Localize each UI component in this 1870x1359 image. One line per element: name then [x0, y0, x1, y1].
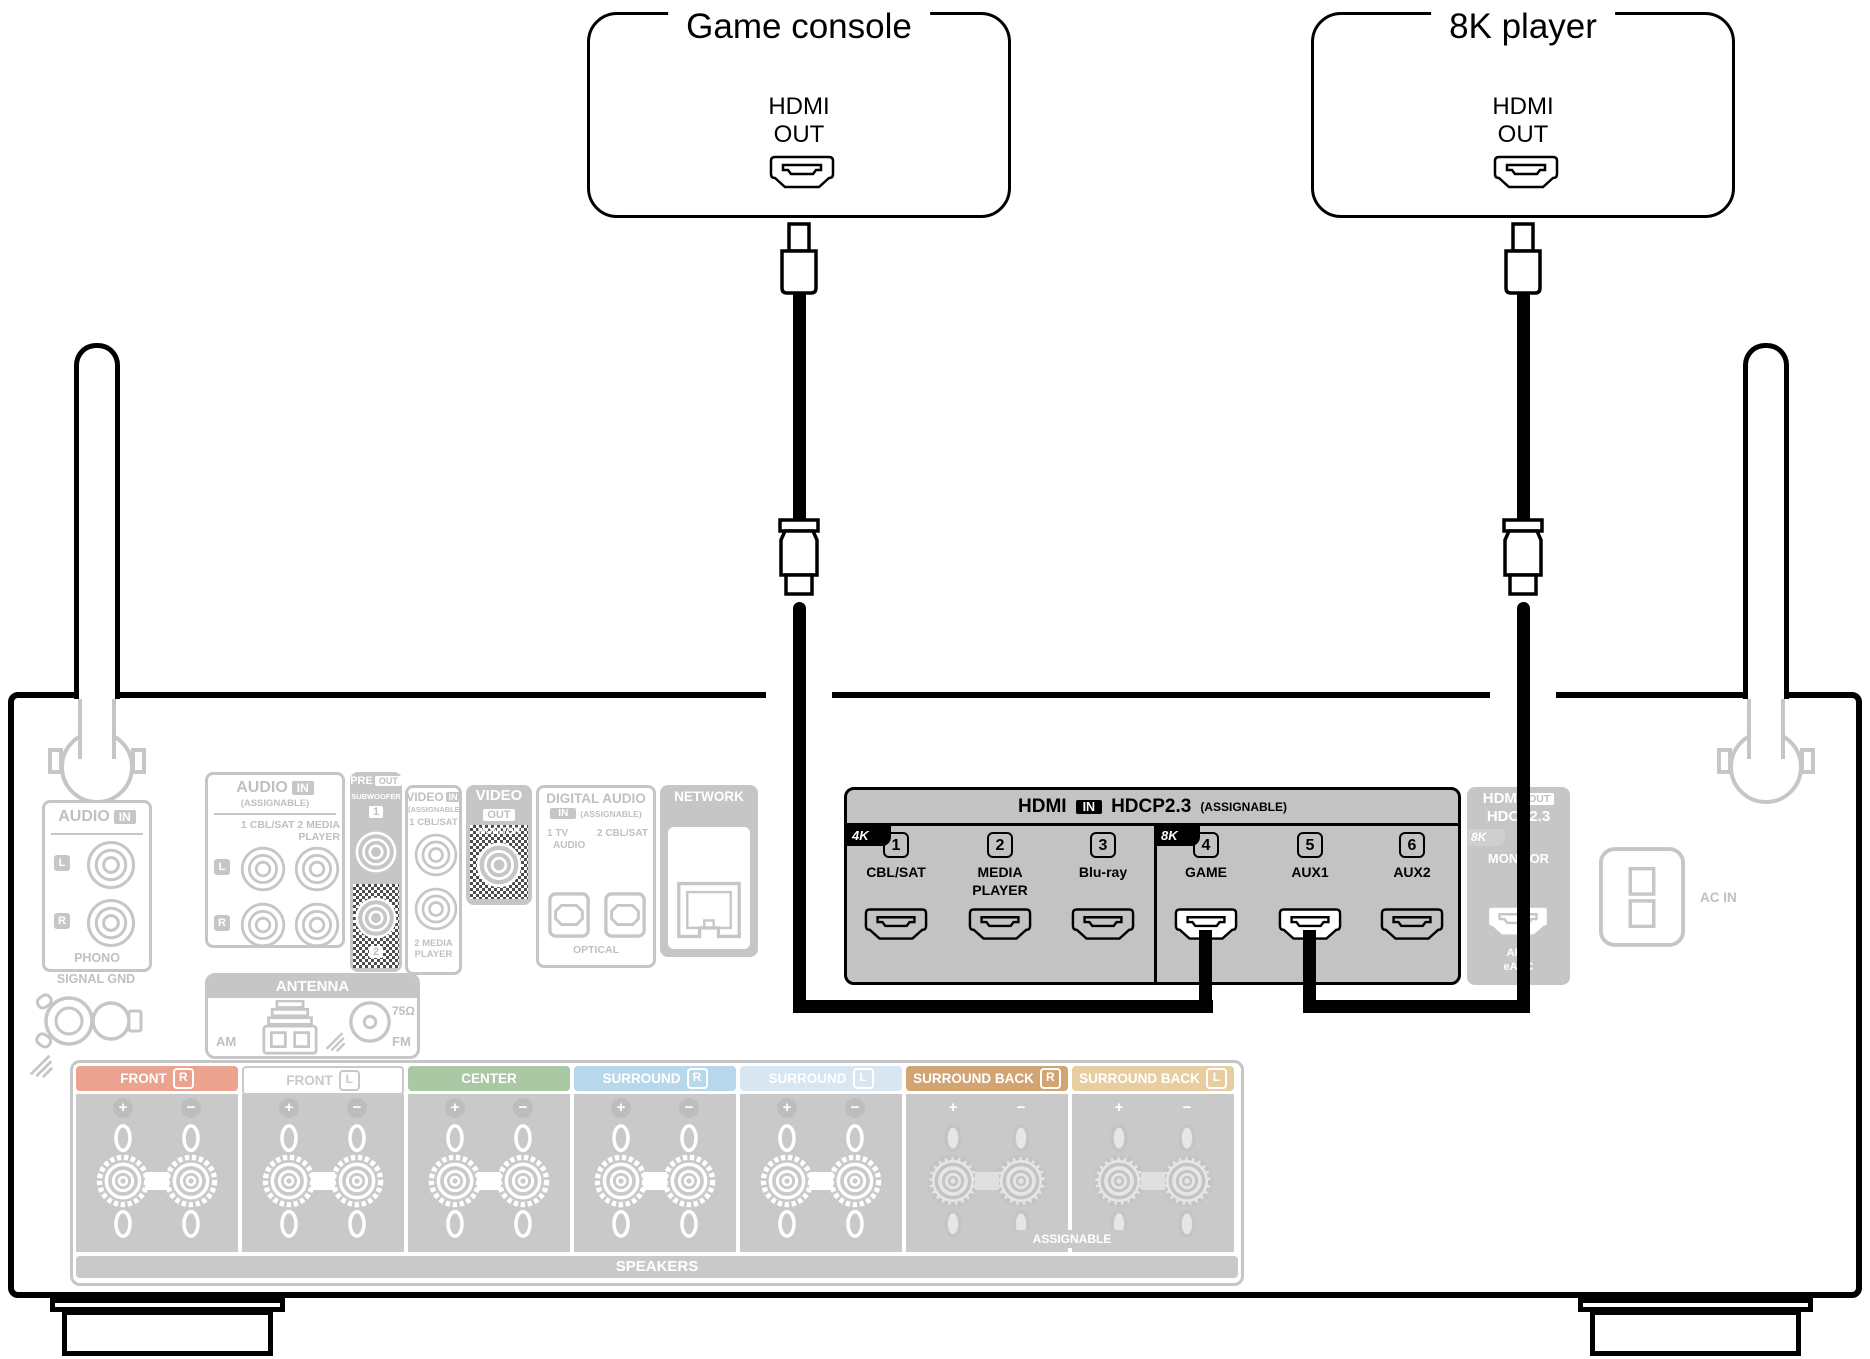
- minus-terminal-icon: −: [679, 1098, 699, 1118]
- fm-coax-icon: [348, 1000, 392, 1044]
- device-title: 8K player: [1431, 5, 1615, 49]
- speaker-channel-center: CENTER + −: [408, 1066, 570, 1252]
- antenna-rod-left: [74, 343, 120, 699]
- fm-75ohm-label: 75Ω: [392, 1004, 415, 1018]
- hdmi-out-title: HDMI: [1483, 790, 1521, 807]
- speaker-channel-name: SURROUND: [768, 1071, 846, 1086]
- pre-out-badge: OUT: [375, 776, 402, 786]
- network-port-panel: [668, 827, 750, 949]
- video-input1-label: 1 CBL/SAT: [408, 817, 459, 828]
- hdmi-port-label: MEDIA: [948, 864, 1052, 881]
- left-channel-label: L: [54, 855, 70, 871]
- hdmi-out-label-line2: OUT: [1314, 121, 1732, 149]
- speaker-channel-name: SURROUND BACK: [913, 1071, 1034, 1086]
- network-label: NETWORK: [660, 789, 758, 804]
- signal-gnd-label: SIGNAL GND: [28, 972, 164, 986]
- receiver-foot-left: [62, 1310, 273, 1356]
- speaker-side-badge: L: [853, 1068, 874, 1089]
- hdmi-out-label-line1: HDMI: [1314, 93, 1732, 121]
- subwoofer-label: SUBWOOFER: [350, 792, 402, 801]
- digital-input1-line2: AUDIO: [553, 840, 585, 851]
- hdmi-in-title: HDMI: [1018, 796, 1067, 818]
- hdmi-in-assignable: (ASSIGNABLE): [1200, 800, 1287, 814]
- hdmi-out-8k-badge: 8K: [1467, 829, 1505, 846]
- left-channel-label: L: [214, 859, 230, 875]
- hdmi-plug-icon: [1501, 518, 1545, 600]
- audio-inputs-line1: 1 CBL/SAT 2 MEDIA: [208, 819, 340, 831]
- plus-terminal-icon: +: [943, 1098, 963, 1118]
- divider: [51, 833, 143, 835]
- monitor-jack-area: MONITOR: [470, 825, 528, 899]
- hdmi-cable-game-run-to-port: [1199, 930, 1212, 1010]
- hdmi-in-hdcp: HDCP2.3: [1111, 796, 1191, 818]
- speakers-title-bar: SPEAKERS: [76, 1256, 1238, 1278]
- pre-out-title: PRE: [350, 775, 373, 787]
- hdmi-cable-8k-run-vertical: [1517, 602, 1530, 1013]
- rca-jack: [293, 845, 341, 893]
- binding-post-icon: [427, 1120, 483, 1242]
- audio-in-header: AUDIO: [236, 779, 288, 797]
- ethernet-port-icon: [675, 879, 743, 941]
- optical-label: OPTICAL: [539, 944, 653, 956]
- rca-jack-subwoofer-2: [354, 896, 398, 940]
- minus-terminal-icon: −: [513, 1098, 533, 1118]
- audio-in-badge: IN: [292, 781, 314, 795]
- device-title: Game console: [668, 5, 930, 49]
- hdmi-port-number: 6: [1399, 832, 1425, 858]
- hdmi-port-number: 2: [987, 832, 1013, 858]
- subwoofer-1-label: 1: [369, 806, 383, 818]
- hdmi-in-header: HDMI IN HDCP2.3 (ASSIGNABLE): [847, 790, 1458, 826]
- digital-input1-line1: 1 TV: [547, 828, 568, 839]
- digital-audio-header: DIGITAL AUDIO: [539, 791, 653, 806]
- optical-port-1: [547, 891, 591, 939]
- video-input2-label-line2: PLAYER: [408, 949, 459, 960]
- hdmi-port-cblsat: [864, 906, 928, 944]
- speaker-channel-name: FRONT: [120, 1071, 167, 1086]
- plus-terminal-icon: +: [1109, 1098, 1129, 1118]
- video-input2-label-line1: 2 MEDIA: [408, 938, 459, 949]
- phono-in-badge: IN: [114, 810, 136, 824]
- digital-audio-assignable: (ASSIGNABLE): [580, 809, 641, 819]
- video-out-header: VIDEO: [466, 787, 532, 804]
- speaker-side-badge: R: [687, 1068, 708, 1089]
- ac-inlet-icon: [1598, 846, 1686, 948]
- signal-gnd-terminal-icon: [35, 992, 147, 1050]
- right-channel-label: R: [214, 915, 230, 931]
- binding-post-icon: [827, 1120, 883, 1242]
- hdmi-port-number: 3: [1090, 832, 1116, 858]
- fm-label: FM: [392, 1034, 411, 1049]
- speaker-channel-bar: FRONT R: [76, 1066, 238, 1091]
- audio-in-phono-block: AUDIO IN L R PHONO: [42, 800, 152, 972]
- video-in-badge: IN: [446, 792, 461, 802]
- am-label: AM: [216, 1034, 236, 1049]
- hdmi-port-number: 4: [1193, 832, 1219, 858]
- antenna-rod-inner-right: [1747, 699, 1785, 759]
- hdmi-cable-game-run-vertical: [793, 602, 806, 1013]
- antenna-rod-right: [1743, 343, 1789, 699]
- hdmi-port-media-player: [968, 906, 1032, 944]
- plus-terminal-icon: +: [279, 1098, 299, 1118]
- binding-post-icon: [261, 1120, 317, 1242]
- antenna-hinge-tab: [1800, 748, 1815, 774]
- speaker-side-badge: L: [1206, 1068, 1227, 1089]
- speakers-assignable-label: ASSIGNABLE: [1012, 1230, 1132, 1248]
- ground-icon: [28, 1052, 56, 1078]
- speaker-channel-bar: SURROUND L: [740, 1066, 902, 1091]
- speaker-channel-surround-l: SURROUND L + −: [740, 1066, 902, 1252]
- speaker-channel-surround-back-r: SURROUND BACK R + −: [906, 1066, 1068, 1252]
- hdmi-port-icon: [769, 155, 835, 191]
- antenna-hinge-tab: [1717, 748, 1732, 774]
- am-terminal-icon: [260, 1000, 320, 1056]
- speaker-channel-name: CENTER: [461, 1071, 517, 1086]
- hdmi-cable-8k: [1517, 292, 1530, 520]
- hdmi-port-aux2: [1380, 906, 1444, 944]
- antenna-block: ANTENNA AM 75Ω FM: [205, 973, 420, 1059]
- minus-terminal-icon: −: [1177, 1098, 1197, 1118]
- post-link-bar: [809, 1172, 833, 1190]
- minus-terminal-icon: −: [181, 1098, 201, 1118]
- hdmi-cable-8k-run-to-port: [1303, 930, 1316, 1010]
- minus-terminal-icon: −: [1011, 1098, 1031, 1118]
- phono-header: AUDIO: [58, 808, 110, 826]
- hdmi-cable-game-run-horizontal: [793, 1000, 1213, 1013]
- hdmi-plug-icon: [1501, 222, 1545, 296]
- video-in-block: VIDEO IN (ASSIGNABLE) 1 CBL/SAT 2 MEDIA …: [405, 785, 462, 975]
- ground-icon: [324, 1030, 348, 1052]
- binding-post-icon: [1091, 1120, 1147, 1242]
- device-box-game-console: Game console HDMI OUT: [587, 12, 1011, 218]
- minus-terminal-icon: −: [347, 1098, 367, 1118]
- post-link-bar: [643, 1172, 667, 1190]
- hdmi-port-label-line2: PLAYER: [948, 882, 1052, 899]
- network-block: NETWORK: [660, 785, 758, 957]
- audio-inputs-line2: PLAYER: [208, 831, 340, 843]
- post-link-bar: [145, 1172, 169, 1190]
- hdmi-out-label-line1: HDMI: [590, 93, 1008, 121]
- binding-post-icon: [661, 1120, 717, 1242]
- hdmi-in-badge: IN: [1076, 800, 1103, 814]
- hdmi-port-number: 5: [1297, 832, 1323, 858]
- hdmi-port-label: Blu-ray: [1051, 864, 1155, 881]
- antenna-hinge-tab: [48, 748, 63, 774]
- hdmi-port-label: AUX1: [1258, 864, 1362, 881]
- plus-terminal-icon: +: [113, 1098, 133, 1118]
- binding-post-icon: [95, 1120, 151, 1242]
- subwoofer-2-label: 2: [369, 946, 383, 958]
- phono-label: PHONO: [45, 951, 149, 965]
- video-in-assignable: (ASSIGNABLE): [408, 805, 459, 814]
- divider: [214, 813, 336, 815]
- speaker-channel-surround-back-l: SURROUND BACK L + −: [1072, 1066, 1234, 1252]
- video-in-header: VIDEO: [406, 790, 443, 804]
- antenna-hinge-tab: [131, 748, 146, 774]
- post-link-bar: [311, 1172, 335, 1190]
- hdmi-port-bluray: [1071, 906, 1135, 944]
- rca-jack: [293, 901, 341, 949]
- binding-post-icon: [925, 1120, 981, 1242]
- plus-terminal-icon: +: [611, 1098, 631, 1118]
- binding-post-icon: [495, 1120, 551, 1242]
- rca-jack-phono-l: [85, 839, 137, 891]
- minus-terminal-icon: −: [845, 1098, 865, 1118]
- hdmi-port-label: CBL/SAT: [844, 864, 948, 881]
- binding-post-icon: [163, 1120, 219, 1242]
- speaker-channel-bar: SURROUND BACK R: [906, 1066, 1068, 1091]
- receiver-foot-right: [1590, 1310, 1801, 1356]
- antenna-header: ANTENNA: [208, 976, 417, 998]
- plus-terminal-icon: +: [445, 1098, 465, 1118]
- hdmi-plug-icon: [777, 518, 821, 600]
- digital-input2-label: 2 CBL/SAT: [597, 828, 648, 839]
- binding-post-icon: [993, 1120, 1049, 1242]
- rca-jack: [239, 845, 287, 893]
- audio-in-assignable-block: AUDIO IN (ASSIGNABLE) 1 CBL/SAT 2 MEDIA …: [205, 772, 345, 948]
- optical-port-2: [603, 891, 647, 939]
- ac-in-label: AC IN: [1700, 890, 1737, 905]
- digital-audio-in-badge: IN: [550, 808, 576, 819]
- speaker-channel-name: SURROUND: [602, 1071, 680, 1086]
- rca-jack-video-1: [413, 832, 459, 878]
- monitor-label: MONITOR: [470, 826, 528, 836]
- post-link-bar: [477, 1172, 501, 1190]
- hdmi-port-label: AUX2: [1360, 864, 1464, 881]
- hdmi-plug-icon: [777, 222, 821, 296]
- speaker-channel-bar: SURROUND BACK L: [1072, 1066, 1234, 1091]
- plus-terminal-icon: +: [777, 1098, 797, 1118]
- antenna-rod-inner-left: [78, 699, 116, 759]
- speaker-side-badge: L: [339, 1070, 360, 1091]
- subwoofer-2-area: 2: [353, 884, 399, 968]
- binding-post-icon: [329, 1120, 385, 1242]
- post-link-bar: [975, 1172, 999, 1190]
- rca-jack-subwoofer-1: [354, 830, 398, 874]
- rca-jack: [239, 901, 287, 949]
- pre-out-block: PRE OUT SUBWOOFER 1 2: [350, 772, 402, 972]
- hdmi-port-label: GAME: [1154, 864, 1258, 881]
- speaker-side-badge: R: [173, 1068, 194, 1089]
- speaker-channel-front-l: FRONT L + −: [242, 1066, 404, 1252]
- diagram-canvas: Game console HDMI OUT 8K player HDMI OUT…: [0, 0, 1870, 1359]
- hdmi-port-icon: [1493, 155, 1559, 191]
- video-out-badge: OUT: [483, 809, 514, 821]
- device-box-8k-player: 8K player HDMI OUT: [1311, 12, 1735, 218]
- hdmi-in-section: HDMI IN HDCP2.3 (ASSIGNABLE) 4K 8K 1 CBL…: [844, 787, 1461, 985]
- binding-post-icon: [1159, 1120, 1215, 1242]
- speaker-channel-name: FRONT: [286, 1073, 333, 1088]
- binding-post-icon: [593, 1120, 649, 1242]
- binding-post-icon: [759, 1120, 815, 1242]
- right-channel-label: R: [54, 913, 70, 929]
- hdmi-port-number: 1: [883, 832, 909, 858]
- speaker-channel-bar: CENTER: [408, 1066, 570, 1091]
- audio-in-assignable: (ASSIGNABLE): [208, 798, 342, 809]
- 4k-8k-divider: [1154, 826, 1157, 982]
- rca-jack-phono-r: [85, 897, 137, 949]
- speaker-channel-bar: FRONT L: [242, 1066, 404, 1095]
- hdmi-out-label-line2: OUT: [590, 121, 1008, 149]
- post-link-bar: [1141, 1172, 1165, 1190]
- digital-audio-block: DIGITAL AUDIO IN (ASSIGNABLE) 1 TV AUDIO…: [536, 785, 656, 968]
- video-out-block: VIDEO OUT MONITOR: [466, 785, 532, 905]
- hdmi-cable-8k-run-horizontal: [1303, 1000, 1530, 1013]
- rca-jack-monitor: [475, 841, 523, 889]
- speaker-channel-surround-r: SURROUND R + −: [574, 1066, 736, 1252]
- hdmi-cable-game: [793, 292, 806, 520]
- speaker-side-badge: R: [1040, 1068, 1061, 1089]
- rca-jack-video-2: [413, 886, 459, 932]
- speaker-channel-name: SURROUND BACK: [1079, 1071, 1200, 1086]
- speaker-channel-bar: SURROUND R: [574, 1066, 736, 1091]
- speaker-channel-front-r: FRONT R + −: [76, 1066, 238, 1252]
